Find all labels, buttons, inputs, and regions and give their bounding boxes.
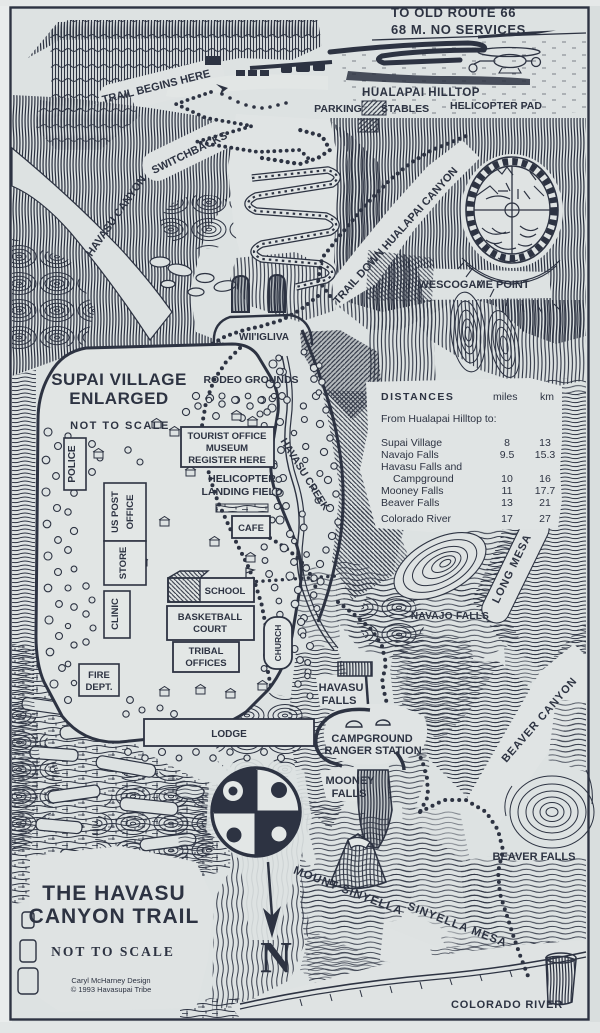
svg-text:COURT: COURT xyxy=(193,624,227,635)
svg-text:NOT TO SCALE: NOT TO SCALE xyxy=(70,420,170,432)
svg-text:MOONEY: MOONEY xyxy=(326,775,376,787)
svg-text:Mooney Falls: Mooney Falls xyxy=(381,485,443,497)
svg-text:TOURIST OFFICE: TOURIST OFFICE xyxy=(188,431,267,442)
svg-text:21: 21 xyxy=(539,497,551,509)
svg-text:PARKING: PARKING xyxy=(314,103,362,115)
svg-text:10: 10 xyxy=(501,473,513,485)
svg-text:BASKETBALL: BASKETBALL xyxy=(178,612,243,623)
svg-text:WESCOGAME POINT: WESCOGAME POINT xyxy=(418,279,530,291)
svg-text:TO OLD ROUTE 66: TO OLD ROUTE 66 xyxy=(391,5,516,20)
svg-text:SUPAI VILLAGE: SUPAI VILLAGE xyxy=(51,370,187,389)
svg-text:US POST: US POST xyxy=(110,491,121,533)
svg-text:DISTANCES: DISTANCES xyxy=(381,391,454,403)
svg-text:Havasu Falls and: Havasu Falls and xyxy=(381,461,462,473)
svg-text:Navajo Falls: Navajo Falls xyxy=(381,449,439,461)
svg-text:FALLS: FALLS xyxy=(322,695,357,707)
svg-text:Campground: Campground xyxy=(393,473,454,485)
svg-text:WII'IGLIVA: WII'IGLIVA xyxy=(239,332,289,343)
svg-text:CAMPGROUND: CAMPGROUND xyxy=(331,733,412,745)
svg-text:HUALAPAI HILLTOP: HUALAPAI HILLTOP xyxy=(362,87,480,99)
svg-text:16: 16 xyxy=(539,473,551,485)
svg-text:CLINIC: CLINIC xyxy=(110,598,121,630)
svg-text:CANYON TRAIL: CANYON TRAIL xyxy=(29,905,200,928)
svg-text:LODGE: LODGE xyxy=(211,729,247,740)
svg-text:RANGER STATION: RANGER STATION xyxy=(324,745,421,757)
svg-text:POLICE: POLICE xyxy=(67,445,78,483)
svg-text:HAVASU: HAVASU xyxy=(319,682,364,694)
svg-text:km: km xyxy=(540,391,554,403)
svg-text:SCHOOL: SCHOOL xyxy=(205,586,246,597)
svg-text:FALLS: FALLS xyxy=(332,788,367,800)
svg-text:N: N xyxy=(260,933,292,982)
svg-text:17.7: 17.7 xyxy=(535,485,556,497)
svg-text:REGISTER HERE: REGISTER HERE xyxy=(188,455,266,466)
svg-text:STORE: STORE xyxy=(118,547,129,580)
svg-text:Colorado River: Colorado River xyxy=(381,513,452,525)
svg-text:13: 13 xyxy=(539,437,551,449)
svg-text:CAFE: CAFE xyxy=(238,523,264,534)
svg-text:HELICOPTER: HELICOPTER xyxy=(208,473,276,485)
svg-text:27: 27 xyxy=(539,513,551,525)
svg-text:68 M. NO SERVICES: 68 M. NO SERVICES xyxy=(391,22,526,37)
svg-text:Supai Village: Supai Village xyxy=(381,437,442,449)
svg-text:From Hualapai Hilltop to:: From Hualapai Hilltop to: xyxy=(381,413,497,425)
svg-text:NAVAJO FALLS: NAVAJO FALLS xyxy=(411,611,489,622)
svg-text:MUSEUM: MUSEUM xyxy=(206,443,248,454)
svg-text:BEAVER FALLS: BEAVER FALLS xyxy=(493,851,576,863)
svg-text:11: 11 xyxy=(502,485,513,497)
svg-text:RODEO GROUNDS: RODEO GROUNDS xyxy=(203,374,298,386)
svg-text:HELICOPTER PAD: HELICOPTER PAD xyxy=(450,100,542,112)
svg-text:miles: miles xyxy=(493,391,518,403)
svg-text:NOT TO SCALE: NOT TO SCALE xyxy=(51,944,175,959)
svg-text:STABLES: STABLES xyxy=(381,103,429,115)
svg-text:TRIBAL: TRIBAL xyxy=(189,646,224,657)
svg-text:OFFICE: OFFICE xyxy=(125,495,136,530)
svg-text:15.3: 15.3 xyxy=(535,449,556,461)
svg-text:ENLARGED: ENLARGED xyxy=(69,389,168,408)
svg-text:© 1993 Havasupai Tribe: © 1993 Havasupai Tribe xyxy=(71,985,152,994)
svg-text:Beaver Falls: Beaver Falls xyxy=(381,497,439,509)
svg-text:LANDING FIELD: LANDING FIELD xyxy=(201,486,282,498)
svg-text:17: 17 xyxy=(501,513,513,525)
svg-text:DEPT.: DEPT. xyxy=(86,682,113,693)
svg-text:13: 13 xyxy=(501,497,513,509)
svg-text:FIRE: FIRE xyxy=(88,670,110,681)
svg-text:8: 8 xyxy=(504,437,510,449)
svg-text:Caryl McHarney Design: Caryl McHarney Design xyxy=(71,976,150,985)
svg-text:OFFICES: OFFICES xyxy=(185,658,226,669)
svg-text:COLORADO RIVER: COLORADO RIVER xyxy=(451,999,563,1011)
svg-text:THE HAVASU: THE HAVASU xyxy=(42,882,185,905)
svg-text:CHURCH: CHURCH xyxy=(273,625,283,662)
svg-text:9.5: 9.5 xyxy=(500,449,515,461)
